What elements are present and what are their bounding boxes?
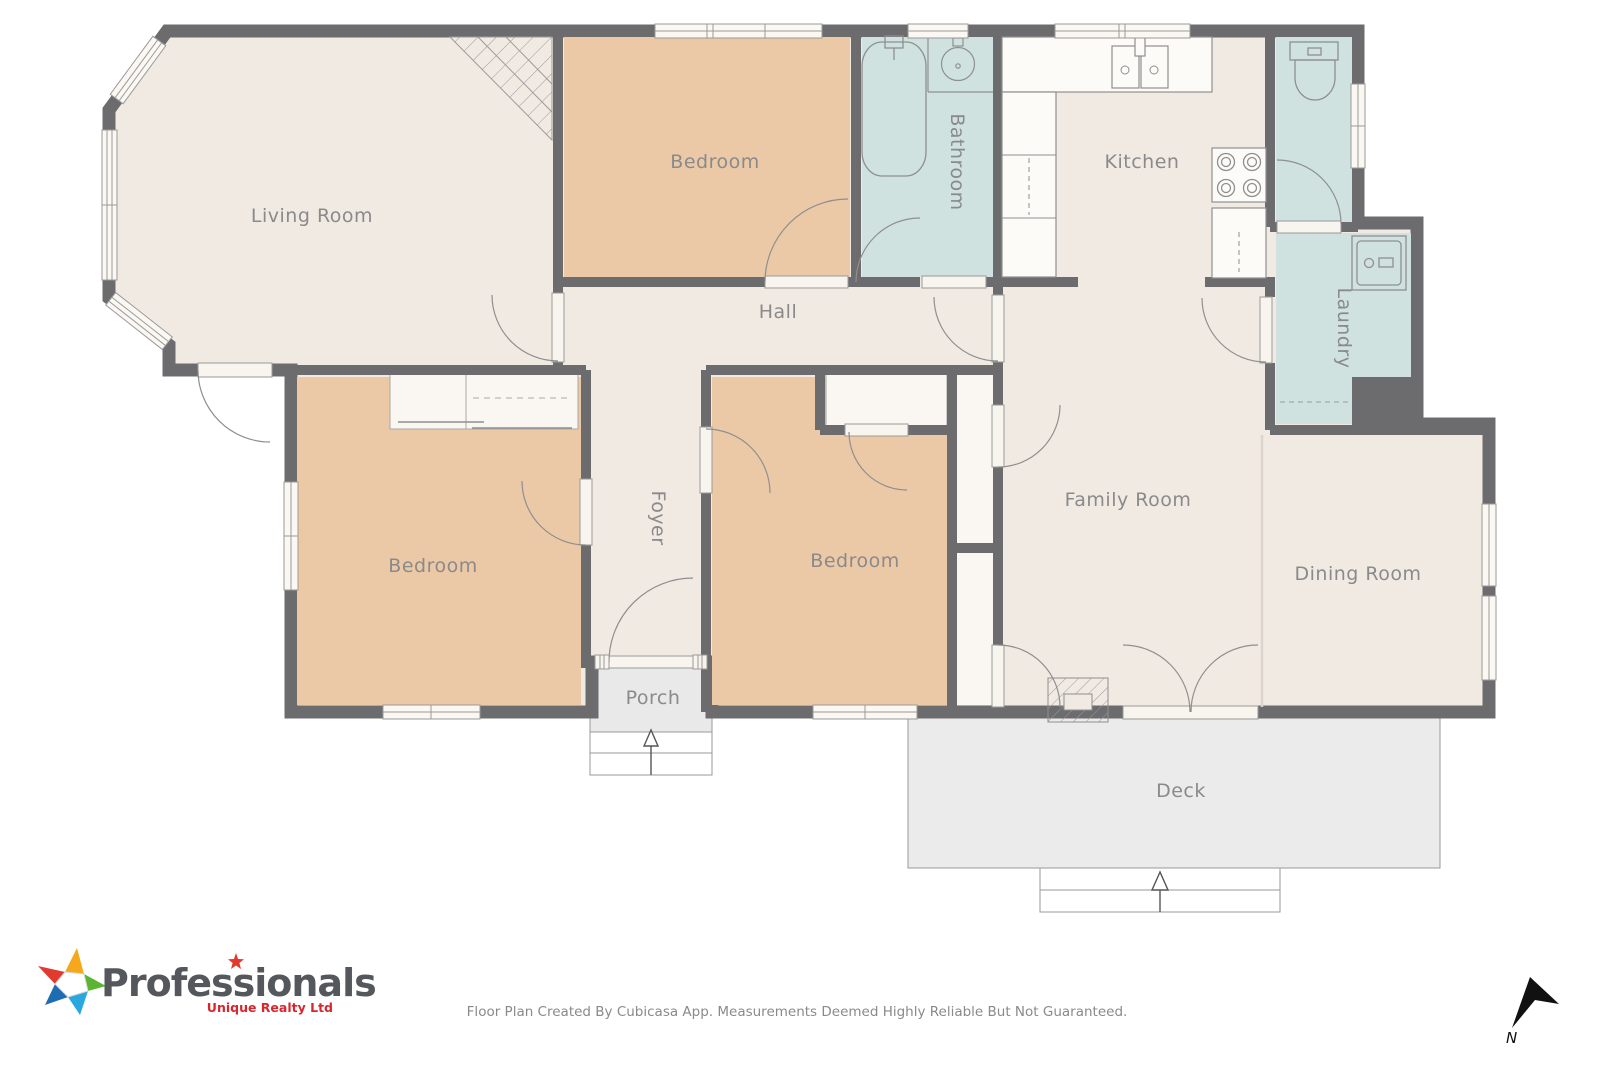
bay-window-left bbox=[102, 130, 117, 280]
kitchen-label: Kitchen bbox=[1105, 151, 1180, 173]
compass: N bbox=[1506, 977, 1559, 1047]
floor-plan-page: Living Room Bedroom Bathroom Kitchen Lau… bbox=[0, 0, 1600, 1066]
bedroom-middle-label: Bedroom bbox=[810, 550, 899, 572]
wc-floor bbox=[1276, 37, 1352, 222]
brand-wordmark: Professionals bbox=[101, 961, 376, 1005]
deck-label: Deck bbox=[1156, 780, 1206, 802]
hall-label: Hall bbox=[759, 301, 798, 323]
front-door-sidelight bbox=[595, 655, 609, 669]
bedroom-middle-window-south bbox=[813, 705, 917, 719]
north-label: N bbox=[1506, 1029, 1517, 1047]
laundry-label: Laundry bbox=[1333, 288, 1355, 369]
bedroom-left-window-west bbox=[284, 482, 298, 590]
brand-tagline: Unique Realty Ltd bbox=[207, 1000, 333, 1015]
front-door-sidelight bbox=[693, 655, 707, 669]
stove bbox=[1212, 148, 1266, 202]
floor-plan-canvas: Living Room Bedroom Bathroom Kitchen Lau… bbox=[0, 0, 1600, 1066]
bedroom-top-windows bbox=[655, 24, 822, 38]
dining-room-label: Dining Room bbox=[1295, 563, 1422, 585]
closet-a bbox=[957, 375, 993, 543]
bedroom-left-window-south bbox=[383, 705, 480, 719]
porch-label: Porch bbox=[626, 687, 681, 709]
porch-structure bbox=[590, 668, 712, 775]
wc-window bbox=[1351, 84, 1365, 168]
kitchen-counter-left bbox=[1002, 92, 1056, 277]
north-arrow-icon bbox=[1512, 977, 1559, 1028]
kitchen-windows bbox=[1055, 24, 1190, 38]
wall-block bbox=[1352, 377, 1423, 430]
bathroom-window bbox=[908, 24, 968, 38]
bathroom-label: Bathroom bbox=[946, 113, 968, 210]
living-room-label: Living Room bbox=[251, 205, 373, 227]
deck-structure bbox=[908, 714, 1440, 912]
brand-logo: Professionals Unique Realty Ltd bbox=[38, 948, 376, 1015]
bedroom-left-closet bbox=[390, 373, 578, 429]
fireplace bbox=[1048, 678, 1108, 722]
footer-disclaimer: Floor Plan Created By Cubicasa App. Meas… bbox=[467, 1004, 1128, 1020]
closet-b bbox=[957, 553, 993, 705]
bedroom-middle-closet bbox=[826, 371, 947, 426]
brand-star-icon bbox=[38, 948, 106, 1015]
family-room-label: Family Room bbox=[1065, 489, 1192, 511]
door-living-exterior bbox=[198, 363, 272, 442]
kitchen-counter-top bbox=[1002, 37, 1212, 92]
bedroom-left-label: Bedroom bbox=[388, 555, 477, 577]
foyer-label: Foyer bbox=[647, 490, 669, 545]
bedroom-top-label: Bedroom bbox=[670, 151, 759, 173]
